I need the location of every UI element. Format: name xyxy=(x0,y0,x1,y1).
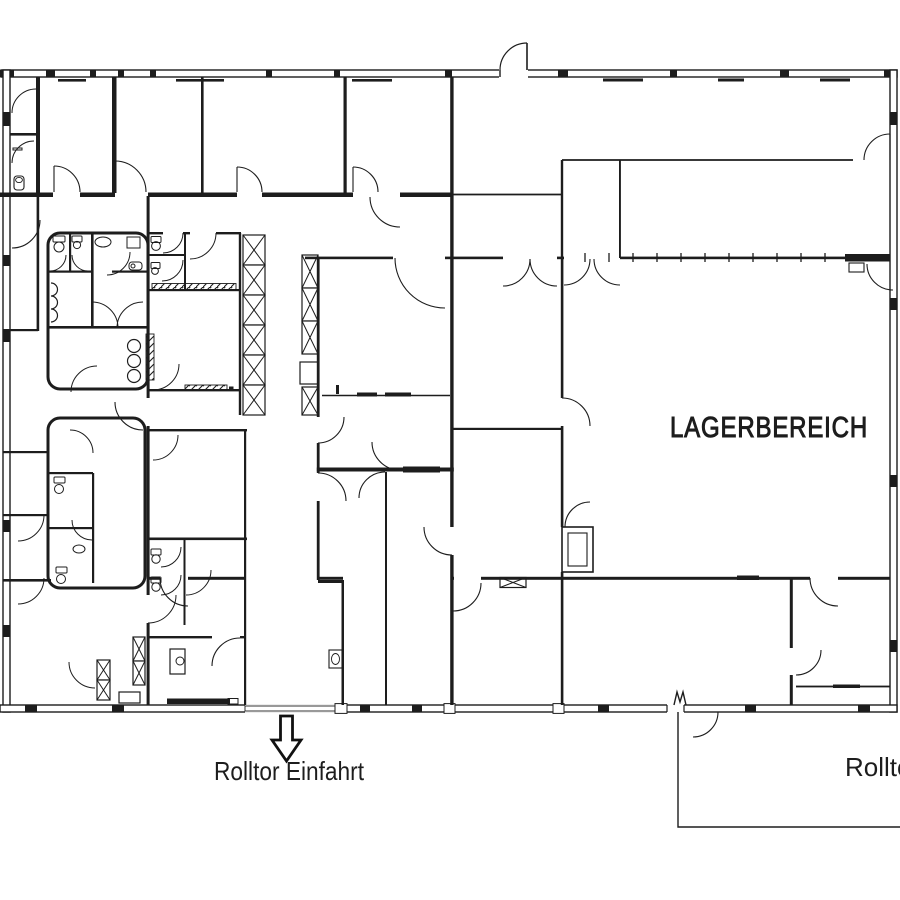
floor-plan-canvas: LAGERBEREICH xyxy=(0,0,900,900)
door-arc xyxy=(594,259,620,285)
door-arc xyxy=(370,197,400,227)
door-arc xyxy=(212,638,240,666)
door-arc xyxy=(69,662,95,688)
burner xyxy=(128,370,141,383)
door-arc xyxy=(318,473,346,501)
staircase-b xyxy=(300,255,318,415)
door-arc xyxy=(50,255,66,271)
door-arc xyxy=(161,547,181,567)
bottom-door-gap xyxy=(667,704,684,715)
burner xyxy=(128,355,141,368)
door-arc xyxy=(72,520,92,540)
door-arc xyxy=(530,259,557,286)
radiator-scallops xyxy=(51,283,58,322)
wc-fixtures xyxy=(151,549,161,591)
staircase-c xyxy=(97,637,145,703)
door-arc xyxy=(72,255,88,271)
door-arc xyxy=(864,134,890,160)
elevator-car xyxy=(568,533,587,566)
door-arc xyxy=(153,435,178,460)
chair xyxy=(176,657,184,665)
door-arc xyxy=(395,258,445,308)
door-arc xyxy=(796,650,821,675)
counter-hatch xyxy=(185,385,227,390)
staircase-shafts xyxy=(97,235,526,703)
door-arc xyxy=(565,502,590,527)
door-arc xyxy=(115,402,143,430)
door-frame xyxy=(849,263,864,272)
door-arc xyxy=(810,578,838,606)
floor-plan: LAGERBEREICH xyxy=(0,0,900,900)
door-arc xyxy=(867,264,893,290)
door-arc xyxy=(163,233,183,253)
sink-fixture xyxy=(329,650,342,668)
door-arc xyxy=(564,259,590,285)
door-arc xyxy=(453,583,481,611)
door-arc xyxy=(12,89,36,113)
door-arc xyxy=(372,442,400,470)
desk xyxy=(170,649,185,674)
staircase-a xyxy=(243,235,265,415)
door-arc xyxy=(237,167,262,192)
down-arrow-icon xyxy=(272,716,301,761)
door-arc xyxy=(359,472,385,498)
door-arc xyxy=(153,364,179,390)
door-arc xyxy=(148,595,176,623)
center-rooms xyxy=(342,77,621,705)
door-pivot-mark xyxy=(674,692,686,705)
door-arc xyxy=(12,220,40,248)
door-arc xyxy=(562,398,590,426)
door-arc xyxy=(54,166,80,192)
elevator-shaft xyxy=(562,527,593,572)
door-arc xyxy=(70,430,93,453)
wc-fixtures xyxy=(54,477,85,584)
right-edge-label: Rolltor xyxy=(845,752,900,782)
door-arc xyxy=(115,161,146,192)
door-arc xyxy=(424,527,452,555)
door-arc xyxy=(18,515,44,541)
top-office-row xyxy=(0,77,452,197)
rounded-room xyxy=(48,233,148,389)
door-arc xyxy=(12,141,34,163)
door-arc xyxy=(162,260,183,281)
door-arc xyxy=(353,167,378,192)
door-arc xyxy=(190,233,216,259)
burner xyxy=(128,340,141,353)
door-arc xyxy=(500,43,527,70)
roller-door-opening xyxy=(245,706,335,711)
door-arc xyxy=(117,302,143,328)
counter-hatch xyxy=(152,284,236,291)
door-arc xyxy=(318,417,344,443)
window-sills xyxy=(58,79,850,82)
door-arc xyxy=(503,259,530,286)
upper-right-rooms xyxy=(452,134,890,258)
entrance-label: Rolltor Einfahrt xyxy=(214,756,365,786)
door-arc xyxy=(18,578,44,604)
top-door-gap xyxy=(499,69,528,79)
warehouse-label: LAGERBEREICH xyxy=(670,412,868,444)
door-arc xyxy=(186,570,211,595)
door-arc xyxy=(92,302,118,328)
bottom-rooms xyxy=(55,578,890,705)
door-arc xyxy=(693,712,718,737)
rounded-room xyxy=(48,418,145,588)
